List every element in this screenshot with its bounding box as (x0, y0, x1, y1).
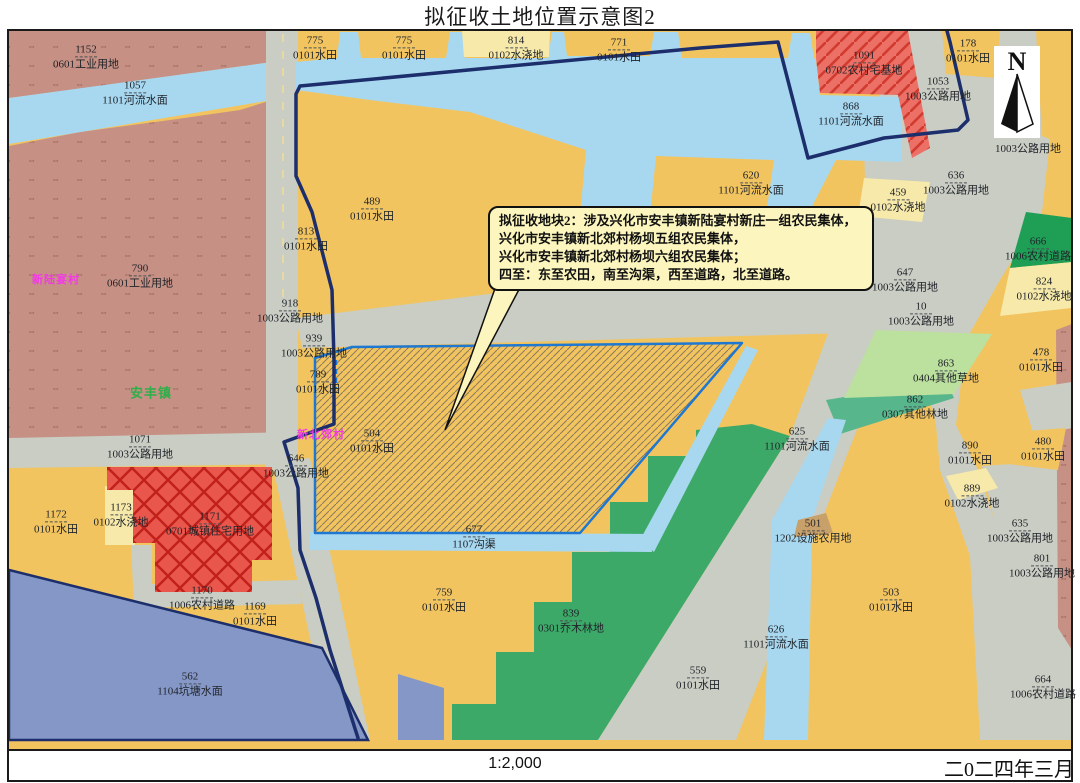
parcel-label: 6251101河流水面 (764, 425, 830, 452)
parcel-label: 101003公路用地 (888, 300, 954, 327)
callout-line-3: 兴化市安丰镇新北郊村杨坝六组农民集体； (499, 248, 863, 266)
parcel-label: 8240102水浇地 (1017, 275, 1072, 302)
map-date: 二0二四年三月 (814, 753, 1074, 782)
parcel-label: 11701006农村道路 (169, 584, 235, 611)
parcel-label: 7750101水田 (293, 34, 337, 61)
parcel-label: 10910702农村宅基地 (826, 49, 903, 76)
place-name-label: 新陆宴村 (32, 271, 80, 287)
parcel-label: 1780101水田 (946, 37, 990, 64)
parcel-label: 11730102水浇地 (94, 501, 149, 528)
parcel-label: 8890102水浇地 (945, 482, 1000, 509)
parcel-label: 7710101水田 (597, 36, 641, 63)
parcel-label: 8130101水田 (284, 225, 328, 252)
parcel-label: 9391003公路用地 (281, 332, 347, 359)
parcel-label: 8140102水浇地 (489, 34, 544, 61)
parcel-label: 5040101水田 (350, 427, 394, 454)
parcel-label: 6201101河流水面 (718, 169, 784, 196)
acquisition-callout: 拟征收地块2：涉及兴化市安丰镇新陆宴村新庄一组农民集体， 兴化市安丰镇新北郊村杨… (488, 206, 874, 291)
parcel-label: 7750101水田 (382, 34, 426, 61)
parcel-label: 4590102水浇地 (871, 186, 926, 213)
parcel-label: 4890101水田 (350, 195, 394, 222)
parcel-label: 6641006农村道路 (1010, 673, 1076, 700)
parcel-label: 8620307其他林地 (882, 393, 948, 420)
parcel-label: 10571101河流水面 (102, 79, 168, 106)
north-arrow: N (994, 46, 1040, 138)
place-name-label: 新北郊村 (297, 426, 345, 442)
parcel-label: 11690101水田 (233, 600, 277, 627)
parcel-label: 5011202设施农用地 (775, 517, 852, 544)
parcel-label: 10531003公路用地 (905, 75, 971, 102)
parcel-label: 6361003公路用地 (923, 169, 989, 196)
parcel-label: 8390301乔木林地 (538, 607, 604, 634)
parcel-label: 5590101水田 (676, 664, 720, 691)
parcel-label: 7900601工业用地 (107, 262, 173, 289)
parcel-label: 8681101河流水面 (818, 100, 884, 127)
parcel-label: 6351003公路用地 (987, 517, 1053, 544)
parcel-label: 9181003公路用地 (257, 297, 323, 324)
parcel-label: 6461003公路用地 (263, 452, 329, 479)
parcel-label: 7890101水田 (296, 368, 340, 395)
parcel-label: 6261101河流水面 (743, 623, 809, 650)
callout-line-4: 四至：东至农田，南至沟渠，西至道路，北至道路。 (499, 266, 863, 284)
parcel-label: 6661006农村道路 (1005, 235, 1071, 262)
place-name-label: 安丰镇 (130, 383, 172, 402)
callout-lead: 拟征收地块2： (499, 213, 584, 228)
parcel-label: 4800101水田 (1021, 435, 1065, 462)
parcel-label: 8630404其他草地 (913, 357, 979, 384)
parcel-label: 6471003公路用地 (872, 266, 938, 293)
parcel-label: 8900101水田 (948, 439, 992, 466)
parcel-label: 7590101水田 (422, 586, 466, 613)
callout-line-1: 涉及兴化市安丰镇新陆宴村新庄一组农民集体， (584, 213, 857, 228)
parcel-label: 1003公路用地 (995, 143, 1061, 155)
callout-line-2: 兴化市安丰镇新北郊村杨坝五组农民集体， (499, 230, 863, 248)
parcel-label: 11720101水田 (34, 508, 78, 535)
parcel-label: 4780101水田 (1019, 346, 1063, 373)
land-acquisition-map-page: 拟征收土地位置示意图2 ⇔ (0, 0, 1080, 783)
parcel-label: 11710701城镇住宅用地 (166, 510, 254, 537)
north-label: N (1008, 47, 1027, 76)
map-scale: 1:2,000 (430, 755, 600, 773)
parcel-label: 8011003公路用地 (1009, 552, 1075, 579)
parcel-label: 6771107沟渠 (452, 523, 496, 550)
parcel-label: 10711003公路用地 (107, 433, 173, 460)
parcel-label: 11520601工业用地 (53, 43, 119, 70)
parcel-label: 5030101水田 (869, 586, 913, 613)
parcel-label: 5621104坑塘水面 (157, 670, 223, 697)
